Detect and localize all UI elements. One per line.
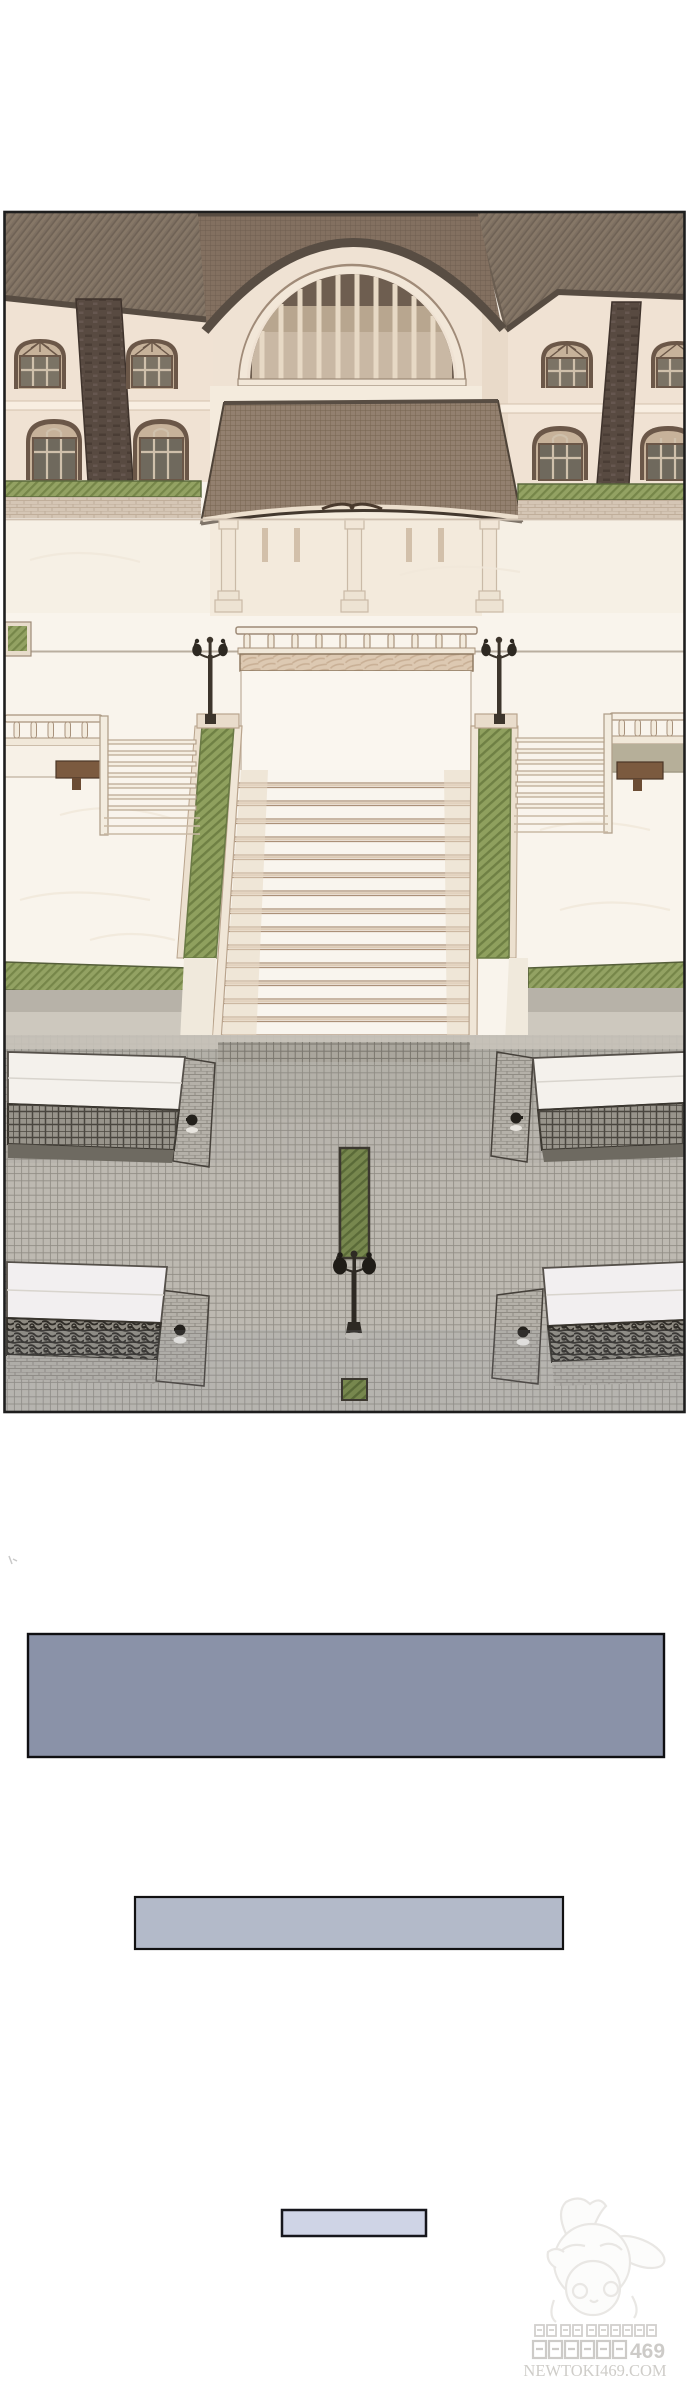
svg-text:NEWTOKI469.COM: NEWTOKI469.COM — [523, 2361, 666, 2380]
svg-text:469: 469 — [630, 2340, 665, 2363]
